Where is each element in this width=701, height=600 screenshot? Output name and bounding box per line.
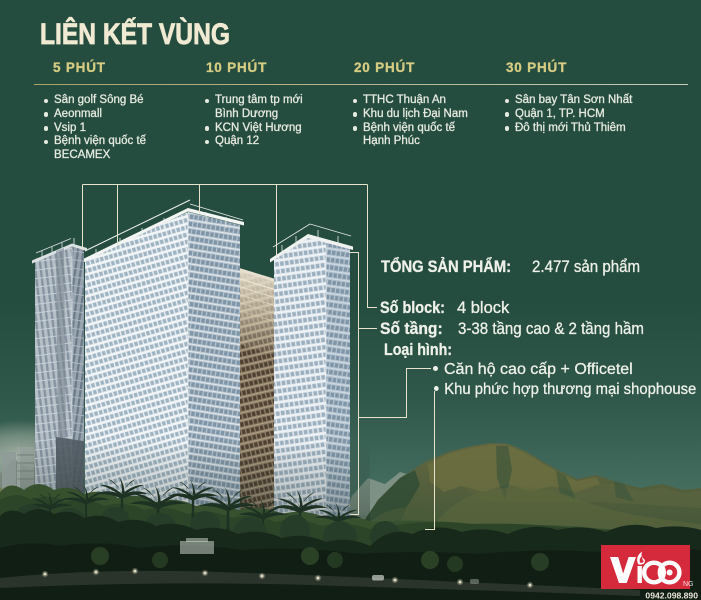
svg-text:NG: NG [683,581,694,588]
svg-text:0942.098.890: 0942.098.890 [645,591,698,600]
